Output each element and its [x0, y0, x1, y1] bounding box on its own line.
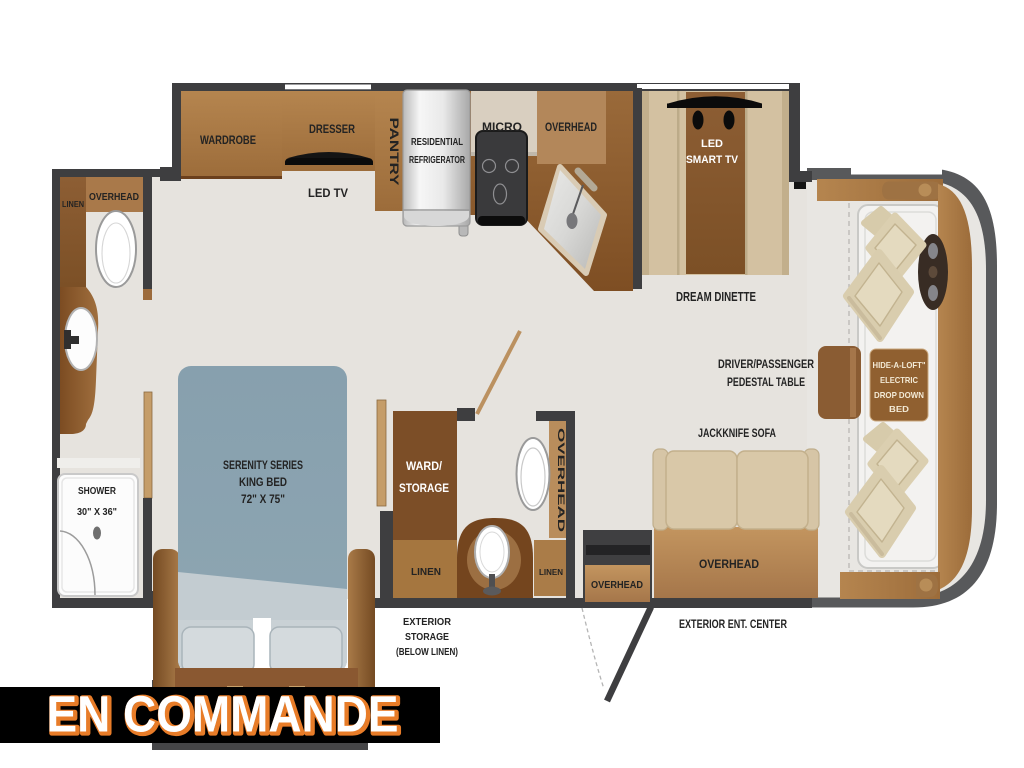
svg-text:REFRIGERATOR: REFRIGERATOR — [409, 155, 466, 166]
svg-text:RESIDENTIAL: RESIDENTIAL — [411, 137, 463, 148]
svg-text:LINEN: LINEN — [411, 567, 441, 578]
svg-text:EXTERIOR ENT. CENTER: EXTERIOR ENT. CENTER — [679, 617, 787, 631]
svg-text:OVERHEAD: OVERHEAD — [699, 557, 759, 571]
svg-text:DRIVER/PASSENGER: DRIVER/PASSENGER — [718, 359, 815, 371]
svg-text:EN COMMANDE: EN COMMANDE — [47, 686, 399, 743]
svg-text:72" X 75": 72" X 75" — [241, 494, 285, 506]
svg-text:SMART TV: SMART TV — [686, 154, 739, 166]
svg-text:DRESSER: DRESSER — [309, 124, 356, 136]
svg-text:(BELOW LINEN): (BELOW LINEN) — [396, 646, 458, 658]
svg-text:OVERHEAD: OVERHEAD — [545, 122, 597, 134]
svg-text:SERENITY SERIES: SERENITY SERIES — [223, 460, 303, 472]
svg-text:LED TV: LED TV — [308, 188, 348, 200]
svg-text:OVERHEAD: OVERHEAD — [555, 428, 566, 532]
svg-text:DROP DOWN: DROP DOWN — [874, 390, 924, 400]
svg-text:MICRO: MICRO — [482, 120, 522, 134]
svg-text:HIDE-A-LOFT": HIDE-A-LOFT" — [873, 360, 926, 370]
svg-text:WARD/: WARD/ — [406, 461, 443, 473]
svg-text:PANTRY: PANTRY — [387, 118, 399, 186]
svg-text:EXTERIOR: EXTERIOR — [403, 616, 451, 628]
svg-text:OVERHEAD: OVERHEAD — [89, 191, 139, 203]
svg-text:30" X 36": 30" X 36" — [77, 506, 117, 518]
svg-text:LINEN: LINEN — [539, 567, 563, 577]
svg-text:JACKKNIFE SOFA: JACKKNIFE SOFA — [698, 426, 776, 440]
svg-text:SHOWER: SHOWER — [78, 485, 116, 497]
svg-text:BED: BED — [889, 404, 909, 414]
svg-text:ELECTRIC: ELECTRIC — [880, 375, 918, 385]
svg-text:LINEN: LINEN — [62, 200, 84, 209]
svg-text:WARDROBE: WARDROBE — [200, 135, 256, 147]
svg-text:STORAGE: STORAGE — [405, 631, 449, 643]
svg-text:PEDESTAL TABLE: PEDESTAL TABLE — [727, 377, 805, 389]
svg-text:OVERHEAD: OVERHEAD — [591, 579, 643, 591]
svg-text:STORAGE: STORAGE — [399, 483, 449, 495]
svg-text:LED: LED — [701, 138, 723, 150]
svg-text:DREAM DINETTE: DREAM DINETTE — [676, 289, 756, 304]
svg-text:KING BED: KING BED — [239, 477, 287, 489]
